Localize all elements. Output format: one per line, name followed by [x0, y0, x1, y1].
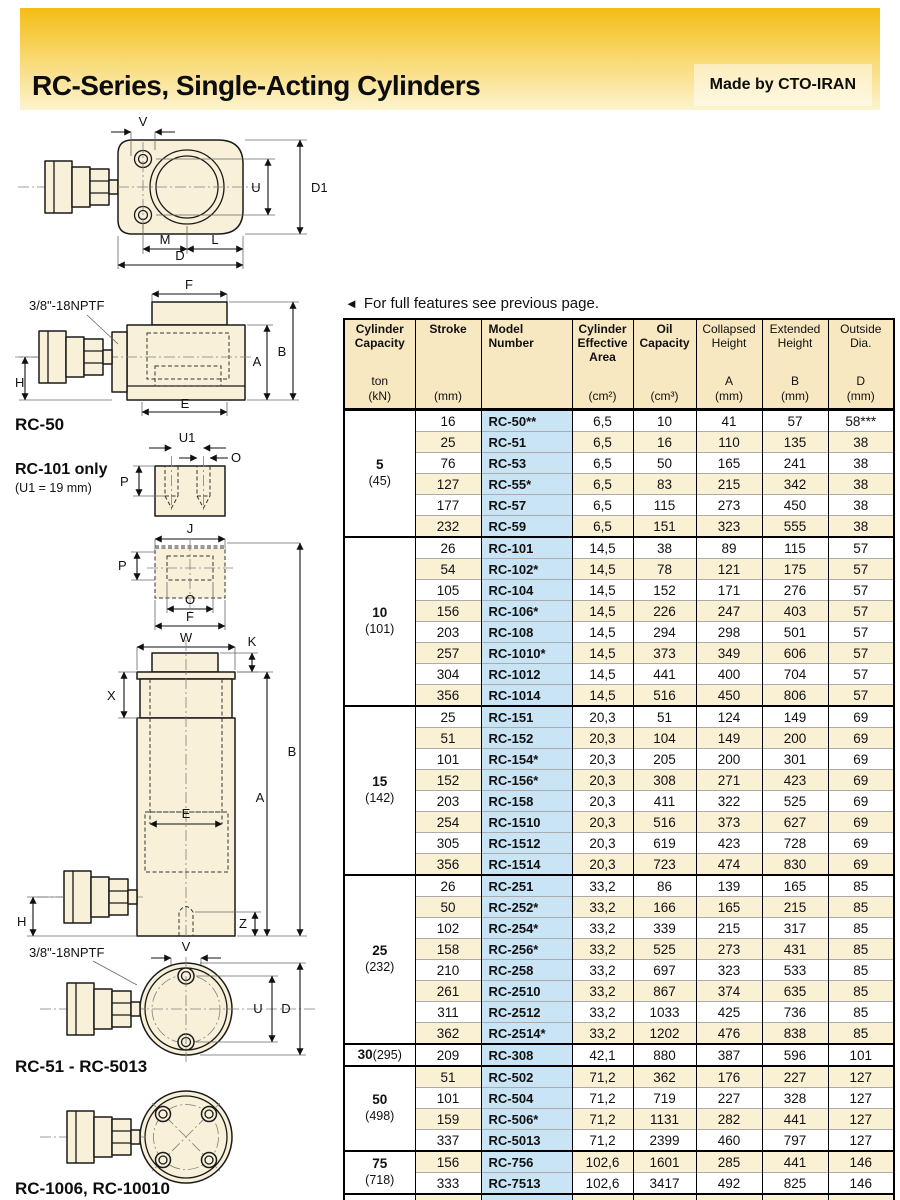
dia-cell: 85 [828, 1002, 894, 1023]
dia-cell: 57 [828, 622, 894, 643]
area-cell: 33,2 [572, 918, 633, 939]
oil-cell: 1601 [633, 1151, 696, 1173]
dia-cell: 58*** [828, 410, 894, 432]
table-row: 177RC-576,511527345038 [344, 495, 894, 516]
dim-label-u2: U [253, 1001, 262, 1016]
extended-cell: 57 [762, 410, 828, 432]
stroke-cell: 54 [415, 559, 481, 580]
extended-cell: 525 [762, 1194, 828, 1200]
collapsed-cell: 41 [696, 410, 762, 432]
oil-cell: 1033 [633, 1002, 696, 1023]
model-cell: RC-104 [481, 580, 572, 601]
extended-cell: 317 [762, 918, 828, 939]
dim-label-d2: D [281, 1001, 290, 1016]
oil-cell: 867 [633, 981, 696, 1002]
oil-cell: 50 [633, 453, 696, 474]
collapsed-cell: 139 [696, 875, 762, 897]
extended-cell: 596 [762, 1044, 828, 1066]
table-row: 10(101)26RC-10114,5388911557 [344, 537, 894, 559]
model-cell: RC-256* [481, 939, 572, 960]
extended-cell: 227 [762, 1066, 828, 1088]
area-cell: 14,5 [572, 622, 633, 643]
table-row: 15(142)25RC-15120,35112414969 [344, 706, 894, 728]
extended-cell: 525 [762, 791, 828, 812]
table-row: 232RC-596,515132355538 [344, 516, 894, 538]
oil-cell: 86 [633, 875, 696, 897]
model-cell: RC-7513 [481, 1173, 572, 1195]
stroke-cell: 261 [415, 981, 481, 1002]
dia-cell: 146 [828, 1151, 894, 1173]
col-header-effective-area: Cylinder Effective Area(cm²) [572, 319, 633, 410]
area-cell: 14,5 [572, 580, 633, 601]
header-banner: RC-Series, Single-Acting Cylinders Made … [20, 8, 880, 110]
table-row: 311RC-251233,2103342573685 [344, 1002, 894, 1023]
table-row: 25(232)26RC-25133,28613916585 [344, 875, 894, 897]
capacity-cell: 25(232) [344, 875, 415, 1044]
dia-cell: 38 [828, 474, 894, 495]
extended-cell: 276 [762, 580, 828, 601]
oil-cell: 38 [633, 537, 696, 559]
model-cell: RC-251 [481, 875, 572, 897]
table-row: 203RC-10814,529429850157 [344, 622, 894, 643]
stroke-cell: 362 [415, 1023, 481, 1045]
oil-cell: 373 [633, 643, 696, 664]
model-cell: RC-1014 [481, 685, 572, 707]
caption-rc101: RC-101 only [15, 461, 108, 478]
dia-cell: 85 [828, 960, 894, 981]
collapsed-cell: 176 [696, 1066, 762, 1088]
capacity-cell: 5(45) [344, 410, 415, 538]
area-cell: 14,5 [572, 664, 633, 685]
collapsed-cell: 110 [696, 432, 762, 453]
oil-cell: 308 [633, 770, 696, 791]
oil-cell: 104 [633, 728, 696, 749]
model-cell: RC-53 [481, 453, 572, 474]
extended-cell: 736 [762, 1002, 828, 1023]
table-row: 333RC-7513102,63417492825146 [344, 1173, 894, 1195]
model-cell: RC-502 [481, 1066, 572, 1088]
stroke-cell: 254 [415, 812, 481, 833]
area-cell: 20,3 [572, 854, 633, 876]
model-cell: RC-504 [481, 1088, 572, 1109]
dim-label-l: L [211, 232, 218, 247]
area-cell: 6,5 [572, 495, 633, 516]
dia-cell: 85 [828, 875, 894, 897]
stroke-cell: 203 [415, 791, 481, 812]
features-note-text: For full features see previous page. [364, 295, 599, 312]
dia-cell: 101 [828, 1044, 894, 1066]
area-cell: 33,2 [572, 875, 633, 897]
model-cell: RC-2512 [481, 1002, 572, 1023]
table-row: 158RC-256*33,252527343185 [344, 939, 894, 960]
model-cell: RC-154* [481, 749, 572, 770]
model-cell: RC-101 [481, 537, 572, 559]
technical-drawings: V U D1 M L D [15, 112, 345, 1200]
area-cell: 14,5 [572, 601, 633, 622]
area-cell: 20,3 [572, 770, 633, 791]
model-cell: RC-1006 [481, 1194, 572, 1200]
dim-label-v2: V [182, 939, 191, 954]
model-cell: RC-308 [481, 1044, 572, 1066]
area-cell: 71,2 [572, 1109, 633, 1130]
spec-table: Cylinder Capacityton(kN) Stroke(mm) Mode… [343, 318, 895, 1200]
model-cell: RC-252* [481, 897, 572, 918]
table-row: 156RC-106*14,522624740357 [344, 601, 894, 622]
model-cell: RC-59 [481, 516, 572, 538]
table-row: 95(933)168RC-1006133,32239357525177 [344, 1194, 894, 1200]
dia-cell: 69 [828, 812, 894, 833]
area-cell: 20,3 [572, 706, 633, 728]
area-cell: 20,3 [572, 749, 633, 770]
dia-cell: 38 [828, 453, 894, 474]
table-row: 356RC-151420,372347483069 [344, 854, 894, 876]
table-row: 152RC-156*20,330827142369 [344, 770, 894, 791]
oil-cell: 78 [633, 559, 696, 580]
model-cell: RC-1012 [481, 664, 572, 685]
dim-label-x: X [107, 688, 116, 703]
extended-cell: 149 [762, 706, 828, 728]
stroke-cell: 76 [415, 453, 481, 474]
table-row: 102RC-254*33,233921531785 [344, 918, 894, 939]
table-row: 101RC-154*20,320520030169 [344, 749, 894, 770]
collapsed-cell: 474 [696, 854, 762, 876]
oil-cell: 151 [633, 516, 696, 538]
dim-label-b2: B [288, 744, 297, 759]
collapsed-cell: 374 [696, 981, 762, 1002]
dia-cell: 57 [828, 559, 894, 580]
stroke-cell: 209 [415, 1044, 481, 1066]
dia-cell: 85 [828, 918, 894, 939]
collapsed-cell: 387 [696, 1044, 762, 1066]
stroke-cell: 158 [415, 939, 481, 960]
dim-label-o: O [231, 450, 241, 465]
stroke-cell: 305 [415, 833, 481, 854]
stroke-cell: 16 [415, 410, 481, 432]
collapsed-cell: 247 [696, 601, 762, 622]
model-cell: RC-5013 [481, 1130, 572, 1152]
extended-cell: 165 [762, 875, 828, 897]
extended-cell: 450 [762, 495, 828, 516]
collapsed-cell: 121 [696, 559, 762, 580]
area-cell: 33,2 [572, 960, 633, 981]
model-cell: RC-1512 [481, 833, 572, 854]
capacity-cell: 30(295) [344, 1044, 415, 1066]
oil-cell: 51 [633, 706, 696, 728]
dia-cell: 38 [828, 516, 894, 538]
col-header-stroke: Stroke(mm) [415, 319, 481, 410]
dim-label-b: B [278, 344, 287, 359]
collapsed-cell: 357 [696, 1194, 762, 1200]
collapsed-cell: 171 [696, 580, 762, 601]
oil-cell: 166 [633, 897, 696, 918]
table-row: 105RC-10414,515217127657 [344, 580, 894, 601]
model-cell: RC-102* [481, 559, 572, 580]
stroke-cell: 304 [415, 664, 481, 685]
area-cell: 42,1 [572, 1044, 633, 1066]
extended-cell: 441 [762, 1109, 828, 1130]
extended-cell: 533 [762, 960, 828, 981]
model-cell: RC-756 [481, 1151, 572, 1173]
area-cell: 33,2 [572, 1002, 633, 1023]
stroke-cell: 101 [415, 1088, 481, 1109]
table-row: 51RC-15220,310414920069 [344, 728, 894, 749]
oil-cell: 294 [633, 622, 696, 643]
area-cell: 71,2 [572, 1066, 633, 1088]
model-cell: RC-1514 [481, 854, 572, 876]
collapsed-cell: 124 [696, 706, 762, 728]
catalog-page: RC-Series, Single-Acting Cylinders Made … [0, 0, 900, 1200]
dia-cell: 127 [828, 1109, 894, 1130]
collapsed-cell: 298 [696, 622, 762, 643]
dia-cell: 57 [828, 580, 894, 601]
dia-cell: 57 [828, 643, 894, 664]
stroke-cell: 168 [415, 1194, 481, 1200]
collapsed-cell: 165 [696, 453, 762, 474]
port-label: 3/8"-18NPTF [29, 298, 104, 313]
dim-label-p: P [120, 474, 129, 489]
area-cell: 14,5 [572, 559, 633, 580]
oil-cell: 880 [633, 1044, 696, 1066]
dim-label-a: A [253, 354, 262, 369]
model-cell: RC-2514* [481, 1023, 572, 1045]
diagram-rc101-saddle: RC-101 only (U1 = 19 mm) U1 O P [15, 430, 241, 516]
dia-cell: 57 [828, 601, 894, 622]
table-row: 210RC-25833,269732353385 [344, 960, 894, 981]
area-cell: 6,5 [572, 516, 633, 538]
oil-cell: 2399 [633, 1130, 696, 1152]
table-row: 356RC-101414,551645080657 [344, 685, 894, 707]
caption-rc50: RC-50 [15, 415, 64, 434]
area-cell: 14,5 [572, 685, 633, 707]
dim-label-u1: U1 [179, 430, 196, 445]
oil-cell: 115 [633, 495, 696, 516]
table-row: 50RC-252*33,216616521585 [344, 897, 894, 918]
dia-cell: 57 [828, 685, 894, 707]
area-cell: 14,5 [572, 537, 633, 559]
area-cell: 6,5 [572, 453, 633, 474]
stroke-cell: 159 [415, 1109, 481, 1130]
stroke-cell: 177 [415, 495, 481, 516]
dim-label-z: Z [239, 916, 247, 931]
diagram-four-bolt-view: RC-1006, RC-10010 [15, 1091, 232, 1198]
area-cell: 33,2 [572, 897, 633, 918]
collapsed-cell: 476 [696, 1023, 762, 1045]
table-row: 305RC-151220,361942372869 [344, 833, 894, 854]
caption-rc51-rc5013: RC-51 - RC-5013 [15, 1057, 147, 1076]
area-cell: 71,2 [572, 1130, 633, 1152]
dia-cell: 69 [828, 770, 894, 791]
stroke-cell: 210 [415, 960, 481, 981]
table-row: 254RC-151020,351637362769 [344, 812, 894, 833]
made-by-badge: Made by CTO-IRAN [694, 64, 872, 106]
page-title: RC-Series, Single-Acting Cylinders [20, 70, 480, 110]
dim-label-e2: E [182, 806, 191, 821]
collapsed-cell: 273 [696, 939, 762, 960]
stroke-cell: 257 [415, 643, 481, 664]
dim-label-u: U [251, 180, 260, 195]
collapsed-cell: 400 [696, 664, 762, 685]
extended-cell: 175 [762, 559, 828, 580]
col-header-model-number: Model Number [481, 319, 572, 410]
extended-cell: 441 [762, 1151, 828, 1173]
dim-label-f: F [185, 277, 193, 292]
dim-label-d1: D1 [311, 180, 328, 195]
capacity-cell: 50(498) [344, 1066, 415, 1151]
oil-cell: 697 [633, 960, 696, 981]
dia-cell: 85 [828, 939, 894, 960]
dia-cell: 69 [828, 706, 894, 728]
dim-label-v: V [139, 114, 148, 129]
col-header-collapsed-height: Collapsed HeightA(mm) [696, 319, 762, 410]
area-cell: 33,2 [572, 1023, 633, 1045]
stroke-cell: 26 [415, 537, 481, 559]
features-note: ◄For full features see previous page. [345, 295, 599, 312]
extended-cell: 838 [762, 1023, 828, 1045]
table-row: 101RC-50471,2719227328127 [344, 1088, 894, 1109]
extended-cell: 423 [762, 770, 828, 791]
model-cell: RC-51 [481, 432, 572, 453]
collapsed-cell: 282 [696, 1109, 762, 1130]
dim-label-m: M [160, 232, 171, 247]
extended-cell: 635 [762, 981, 828, 1002]
collapsed-cell: 165 [696, 897, 762, 918]
collapsed-cell: 227 [696, 1088, 762, 1109]
stroke-cell: 156 [415, 601, 481, 622]
model-cell: RC-506* [481, 1109, 572, 1130]
spec-table-body: 5(45)16RC-50**6,510415758***25RC-516,516… [344, 410, 894, 1200]
col-header-outside-dia: Outside Dia.D(mm) [828, 319, 894, 410]
oil-cell: 619 [633, 833, 696, 854]
model-cell: RC-1010* [481, 643, 572, 664]
stroke-cell: 101 [415, 749, 481, 770]
oil-cell: 83 [633, 474, 696, 495]
collapsed-cell: 89 [696, 537, 762, 559]
dia-cell: 69 [828, 749, 894, 770]
extended-cell: 704 [762, 664, 828, 685]
stroke-cell: 102 [415, 918, 481, 939]
collapsed-cell: 349 [696, 643, 762, 664]
oil-cell: 723 [633, 854, 696, 876]
dia-cell: 69 [828, 833, 894, 854]
dim-label-p2: P [118, 558, 127, 573]
collapsed-cell: 373 [696, 812, 762, 833]
col-header-oil-capacity: Oil Capacity(cm³) [633, 319, 696, 410]
stroke-cell: 333 [415, 1173, 481, 1195]
oil-cell: 516 [633, 812, 696, 833]
dia-cell: 69 [828, 854, 894, 876]
model-cell: RC-57 [481, 495, 572, 516]
collapsed-cell: 460 [696, 1130, 762, 1152]
model-cell: RC-254* [481, 918, 572, 939]
extended-cell: 342 [762, 474, 828, 495]
collapsed-cell: 323 [696, 960, 762, 981]
area-cell: 33,2 [572, 939, 633, 960]
dia-cell: 146 [828, 1173, 894, 1195]
model-cell: RC-151 [481, 706, 572, 728]
stroke-cell: 25 [415, 706, 481, 728]
oil-cell: 2239 [633, 1194, 696, 1200]
extended-cell: 806 [762, 685, 828, 707]
stroke-cell: 127 [415, 474, 481, 495]
dim-label-h2: H [17, 914, 26, 929]
table-row: 362RC-2514*33,2120247683885 [344, 1023, 894, 1045]
oil-cell: 441 [633, 664, 696, 685]
area-cell: 133,3 [572, 1194, 633, 1200]
stroke-cell: 203 [415, 622, 481, 643]
collapsed-cell: 492 [696, 1173, 762, 1195]
dim-label-h: H [15, 375, 24, 390]
extended-cell: 825 [762, 1173, 828, 1195]
stroke-cell: 356 [415, 854, 481, 876]
model-cell: RC-156* [481, 770, 572, 791]
area-cell: 20,3 [572, 833, 633, 854]
extended-cell: 301 [762, 749, 828, 770]
oil-cell: 362 [633, 1066, 696, 1088]
dim-label-j: J [187, 521, 194, 536]
stroke-cell: 311 [415, 1002, 481, 1023]
area-cell: 102,6 [572, 1151, 633, 1173]
table-row: 25RC-516,51611013538 [344, 432, 894, 453]
extended-cell: 627 [762, 812, 828, 833]
port-label-2: 3/8"-18NPTF [29, 945, 104, 960]
model-cell: RC-108 [481, 622, 572, 643]
area-cell: 6,5 [572, 432, 633, 453]
model-cell: RC-50** [481, 410, 572, 432]
extended-cell: 797 [762, 1130, 828, 1152]
table-row: 203RC-15820,341132252569 [344, 791, 894, 812]
capacity-cell: 95(933) [344, 1194, 415, 1200]
diagram-saddle-detail: J P O F [118, 521, 300, 630]
stroke-cell: 337 [415, 1130, 481, 1152]
dim-label-f2: F [186, 609, 194, 624]
collapsed-cell: 200 [696, 749, 762, 770]
extended-cell: 328 [762, 1088, 828, 1109]
dia-cell: 127 [828, 1130, 894, 1152]
stroke-cell: 152 [415, 770, 481, 791]
dia-cell: 38 [828, 432, 894, 453]
table-row: 127RC-55*6,58321534238 [344, 474, 894, 495]
model-cell: RC-2510 [481, 981, 572, 1002]
oil-cell: 1131 [633, 1109, 696, 1130]
area-cell: 102,6 [572, 1173, 633, 1195]
oil-cell: 339 [633, 918, 696, 939]
dim-label-a2: A [256, 790, 265, 805]
oil-cell: 411 [633, 791, 696, 812]
dia-cell: 127 [828, 1066, 894, 1088]
dia-cell: 85 [828, 1023, 894, 1045]
area-cell: 20,3 [572, 812, 633, 833]
collapsed-cell: 285 [696, 1151, 762, 1173]
table-row: 337RC-501371,22399460797127 [344, 1130, 894, 1152]
extended-cell: 830 [762, 854, 828, 876]
extended-cell: 215 [762, 897, 828, 918]
diagram-rc50-top-view: V U D1 M L D [18, 114, 328, 269]
table-row: 159RC-506*71,21131282441127 [344, 1109, 894, 1130]
diagram-base-view: 3/8"-18NPTF V U D [15, 939, 315, 1076]
capacity-cell: 10(101) [344, 537, 415, 706]
oil-cell: 525 [633, 939, 696, 960]
oil-cell: 10 [633, 410, 696, 432]
stroke-cell: 51 [415, 728, 481, 749]
table-row: 30(295)209RC-30842,1880387596101 [344, 1044, 894, 1066]
diagram-cylinder-section: W K X E [17, 543, 307, 938]
dim-label-o2: O [185, 592, 195, 607]
extended-cell: 200 [762, 728, 828, 749]
stroke-cell: 156 [415, 1151, 481, 1173]
extended-cell: 501 [762, 622, 828, 643]
area-cell: 33,2 [572, 981, 633, 1002]
table-row: 257RC-1010*14,537334960657 [344, 643, 894, 664]
